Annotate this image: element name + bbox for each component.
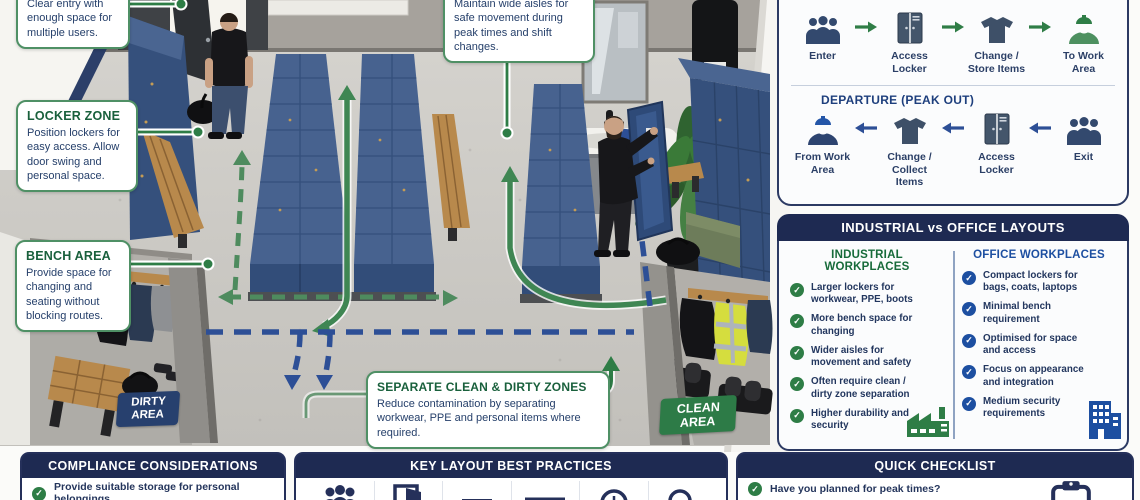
callout-locker-zone-title: LOCKER ZONE [27,109,127,123]
check-icon: ✓ [32,487,46,500]
flow-divider [791,85,1115,86]
callout-entry: Clear entry with enough space for multip… [16,0,130,49]
check-icon: ✓ [790,283,804,297]
door-icon [375,481,444,500]
check-icon: ✓ [962,302,976,316]
wall-board [268,0,408,15]
callout-zones-title: SEPARATE CLEAN & DIRTY ZONES [377,380,599,394]
list-item: ✓Focus on appearance and integration [962,364,1116,388]
callout-clean-dirty-zones: SEPARATE CLEAN & DIRTY ZONES Reduce cont… [366,371,610,449]
clock-icon [580,481,649,500]
arrow-left-icon [941,121,965,135]
flow-step-change-store: Change / Store Items [965,8,1028,75]
list-item: ✓Minimal bench requirement [962,301,1116,325]
office-heading: OFFICE WORKPLACES [962,249,1116,261]
arrow-left-icon [1028,121,1052,135]
comparison-panel-title: INDUSTRIAL vs OFFICE LAYOUTS [777,214,1129,241]
coat-black [680,298,717,360]
tshirt-icon [893,109,927,145]
industrial-heading: INDUSTRIAL WORKPLACES [790,249,944,273]
worker-hardhat-icon [1067,8,1101,44]
people-group-icon [803,8,843,44]
arrival-row: Enter Access Locker Change / Store Items [779,8,1127,75]
list-item: ✓More bench space for changing [790,313,944,337]
check-icon: ✓ [962,397,976,411]
flow-step-change-collect: Change / Collect Items [878,109,941,189]
flow-step-label: Access Locker [878,50,941,75]
list-item: ✓Optimised for space and access [962,333,1116,357]
comparison-panel: INDUSTRIAL vs OFFICE LAYOUTS INDUSTRIAL … [777,214,1129,451]
check-icon: ✓ [790,314,804,328]
callout-locker-zone-text: Position lockers for easy access. Allow … [27,126,127,183]
flow-step-from-work: From Work Area [791,109,854,176]
flow-step-access-locker: Access Locker [965,109,1028,176]
clipboard-icon [1036,480,1106,500]
check-icon: ✓ [790,409,804,423]
compliance-panel: COMPLIANCE CONSIDERATIONS ✓ Provide suit… [20,452,286,500]
bench-icon [443,481,512,500]
dirty-area-sign: DIRTY AREA [116,391,180,427]
industrial-column: INDUSTRIAL WORKPLACES ✓Larger lockers fo… [781,247,953,439]
departure-row: From Work Area Change / Collect Items Ac… [779,109,1127,189]
arrow-right-icon [1028,20,1052,34]
compliance-panel-body: ✓ Provide suitable storage for personal … [20,478,286,500]
callout-entry-text: Clear entry with enough space for multip… [27,0,119,40]
flow-step-label: Access Locker [965,151,1028,176]
coat-navy [746,300,772,354]
quick-checklist-panel: QUICK CHECKLIST ✓ Have you planned for p… [736,452,1134,500]
callout-aisles: Maintain wide aisles for safe movement d… [443,0,595,63]
list-item: ✓ Provide suitable storage for personal … [32,481,274,500]
comparison-panel-body: INDUSTRIAL WORKPLACES ✓Larger lockers fo… [777,241,1129,451]
arrow-right-icon [941,20,965,34]
compliance-panel-title: COMPLIANCE CONSIDERATIONS [20,452,286,478]
quick-checklist-title: QUICK CHECKLIST [736,452,1134,478]
ruler-icon [512,481,581,500]
list-item: ✓Larger lockers for workwear, PPE, boots [790,282,944,306]
flow-step-enter: Enter [791,8,854,63]
check-icon: ✓ [748,482,762,496]
check-icon: ✓ [962,365,976,379]
arrow-right-icon [854,20,878,34]
flow-step-access-locker: Access Locker [878,8,941,75]
callout-aisles-text: Maintain wide aisles for safe movement d… [454,0,584,54]
flow-step-to-work: To Work Area [1052,8,1115,75]
worker-hardhat-icon [806,109,840,145]
flow-step-exit: Exit [1052,109,1115,164]
flow-step-label: Exit [1074,151,1093,164]
office-building-icon [1085,399,1123,439]
check-icon: ✓ [962,334,976,348]
locker-room-layout-infographic: Clear entry with enough space for multip… [0,0,1140,500]
clean-area-sign: CLEAN AREA [659,395,737,435]
best-practices-panel-body [294,478,728,500]
flow-step-label: To Work Area [1052,50,1115,75]
callout-bench-area-text: Provide space for changing and seating w… [26,266,120,323]
tshirt-icon [980,8,1014,44]
callout-zones-text: Reduce contamination by separating workw… [377,397,599,440]
best-practices-panel-title: KEY LAYOUT BEST PRACTICES [294,452,728,478]
callout-locker-zone: LOCKER ZONE Position lockers for easy ac… [16,100,138,192]
list-item: ✓Wider aisles for movement and safety [790,345,944,369]
factory-icon [905,405,951,439]
locker-icon [897,8,923,44]
callout-bench-area-title: BENCH AREA [26,249,120,263]
check-icon: ✓ [790,346,804,360]
flow-panel: Enter Access Locker Change / Store Items [777,0,1129,206]
flow-step-label: From Work Area [791,151,854,176]
magnifier-icon [649,481,717,500]
locker-icon [984,109,1010,145]
office-column: OFFICE WORKPLACES ✓Compact lockers for b… [953,247,1125,439]
people-group-icon [306,481,375,500]
check-icon: ✓ [790,377,804,391]
arrow-left-icon [854,121,878,135]
callout-bench-area: BENCH AREA Provide space for changing an… [15,240,131,332]
departure-heading: DEPARTURE (PEAK OUT) [821,93,1127,107]
quick-checklist-body: ✓ Have you planned for peak times? ✓ [736,478,1134,500]
list-item: ✓Compact lockers for bags, coats, laptop… [962,270,1116,294]
list-item: ✓Often require clean / dirty zone separa… [790,376,944,400]
flow-step-label: Change / Collect Items [878,151,941,189]
people-group-icon [1064,109,1104,145]
check-icon: ✓ [962,271,976,285]
best-practices-panel: KEY LAYOUT BEST PRACTICES [294,452,728,500]
flow-step-label: Enter [809,50,836,63]
flow-step-label: Change / Store Items [965,50,1028,75]
